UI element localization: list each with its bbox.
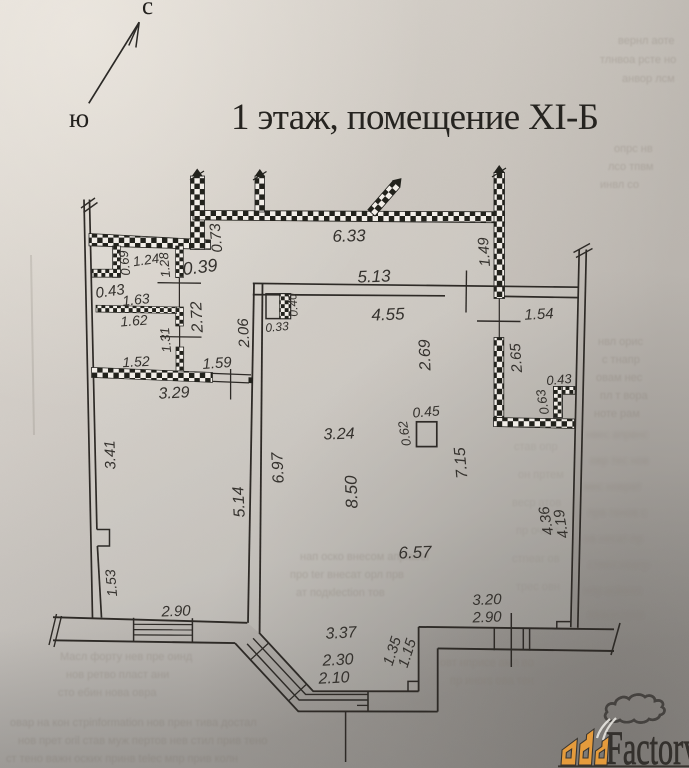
- svg-text:овасн прек: овасн прек: [588, 609, 644, 621]
- svg-text:6.57: 6.57: [398, 542, 432, 562]
- svg-text:7.15: 7.15: [452, 447, 472, 480]
- svg-text:3.29: 3.29: [158, 384, 190, 403]
- svg-text:2.72: 2.72: [188, 301, 207, 334]
- svg-text:нов ретво пласт ани: нов ретво пласт ани: [66, 669, 169, 681]
- svg-text:0.40: 0.40: [285, 293, 301, 318]
- svg-text:опрс нв: опрс нв: [614, 143, 653, 155]
- svg-text:ат подкlection тов: ат подкlection тов: [296, 587, 385, 599]
- svg-text:1.62: 1.62: [120, 312, 149, 330]
- svg-text:2.90: 2.90: [471, 608, 502, 626]
- svg-text:ст тено важн оских принв telec: ст тено важн оских принв telec мпр прив …: [6, 753, 238, 765]
- svg-text:лсо тпвм: лсо тпвм: [608, 161, 654, 173]
- svg-text:4.55: 4.55: [371, 304, 405, 324]
- svg-text:3.24: 3.24: [323, 425, 355, 443]
- svg-text:овам нес: овам нес: [596, 372, 643, 384]
- svg-text:пр инors ова тен: пр инors ова тен: [450, 675, 534, 687]
- svg-text:1.54: 1.54: [524, 305, 554, 324]
- svg-text:0.39: 0.39: [181, 255, 218, 279]
- svg-text:мес новрат: мес новрат: [584, 481, 641, 493]
- svg-text:ов несат пр: ов несат пр: [584, 533, 643, 545]
- svg-text:он пртем: он пртем: [518, 469, 564, 481]
- svg-text:5.13: 5.13: [357, 266, 391, 286]
- svg-text:нпр autores: нпр autores: [584, 585, 642, 597]
- svg-text:пл т вора: пл т вора: [600, 390, 648, 402]
- svg-text:овар на кон стрinformation нов: овар на кон стрinformation нов прен тива…: [10, 717, 257, 729]
- svg-text:5.14: 5.14: [230, 486, 249, 518]
- svg-text:вернл аоте: вернл аоте: [618, 35, 675, 47]
- svg-text:1.28: 1.28: [156, 251, 173, 278]
- svg-text:ю: ю: [69, 103, 89, 133]
- svg-text:с: с: [142, 0, 153, 20]
- svg-text:стnear ов: стnear ов: [512, 553, 560, 565]
- svg-text:веср атов: веср атов: [512, 497, 561, 509]
- svg-text:2.90: 2.90: [160, 602, 191, 620]
- svg-text:прв тенов с: прв тенов с: [588, 507, 647, 519]
- svg-text:1.52: 1.52: [122, 353, 150, 370]
- svg-text:0.73: 0.73: [207, 222, 227, 253]
- svg-text:3.41: 3.41: [101, 440, 119, 470]
- svg-text:с тнапр: с тнапр: [602, 354, 640, 366]
- svg-text:Factory: Factory: [606, 721, 689, 768]
- svg-text:0.45: 0.45: [412, 402, 441, 420]
- svg-text:Масл форту нев пре оинд: Масл форту нев пре оинд: [60, 651, 193, 663]
- svg-text:нвл орис: нвл орис: [598, 336, 644, 348]
- svg-text:2.30: 2.30: [321, 651, 354, 670]
- svg-text:2.06: 2.06: [235, 317, 254, 349]
- svg-text:овт нприсе амл во: овт нприсе амл во: [440, 657, 534, 669]
- svg-text:про ter внесат орл прв: про ter внесат орл прв: [290, 569, 404, 581]
- svg-text:анвор лсм: анвор лсм: [622, 73, 675, 85]
- svg-text:трес овн: трес овн: [516, 581, 560, 593]
- svg-text:1 этаж, помещение XI-Б: 1 этаж, помещение XI-Б: [231, 97, 599, 138]
- svg-text:тлнвоа рсте но: тлнвоа рсте но: [600, 54, 676, 66]
- svg-text:0.69: 0.69: [116, 250, 134, 277]
- svg-text:1.49: 1.49: [475, 236, 494, 267]
- svg-text:1.53: 1.53: [102, 569, 120, 598]
- svg-text:1.63: 1.63: [122, 290, 151, 309]
- svg-text:ствен овапр: ствен овапр: [588, 559, 650, 571]
- svg-text:став опр: став опр: [514, 441, 558, 453]
- svg-text:6.33: 6.33: [332, 226, 366, 246]
- svg-text:овр тес нов: овр тес нов: [590, 455, 649, 467]
- svg-text:3.20: 3.20: [472, 591, 502, 609]
- svg-text:6.97: 6.97: [269, 451, 288, 484]
- svg-text:8.50: 8.50: [341, 475, 361, 509]
- svg-text:1.31: 1.31: [157, 327, 174, 354]
- svg-text:1.59: 1.59: [202, 354, 233, 373]
- svg-text:2.69: 2.69: [416, 339, 434, 372]
- svg-text:ноте рам: ноте рам: [594, 408, 640, 420]
- svg-text:2.65: 2.65: [507, 342, 526, 374]
- svg-text:2.10: 2.10: [317, 669, 350, 688]
- svg-text:0.43: 0.43: [546, 371, 573, 388]
- svg-text:инвл со: инвл со: [600, 179, 639, 191]
- svg-text:сто ебин нова овра: сто ебин нова овра: [58, 687, 157, 699]
- svg-text:нов прет оril став муж пертов: нов прет оril став муж пертов нев стил п…: [18, 735, 267, 747]
- svg-text:нвес апрвнс: нвес апрвнс: [586, 429, 649, 441]
- svg-text:3.37: 3.37: [325, 624, 358, 643]
- svg-text:0.33: 0.33: [265, 319, 290, 335]
